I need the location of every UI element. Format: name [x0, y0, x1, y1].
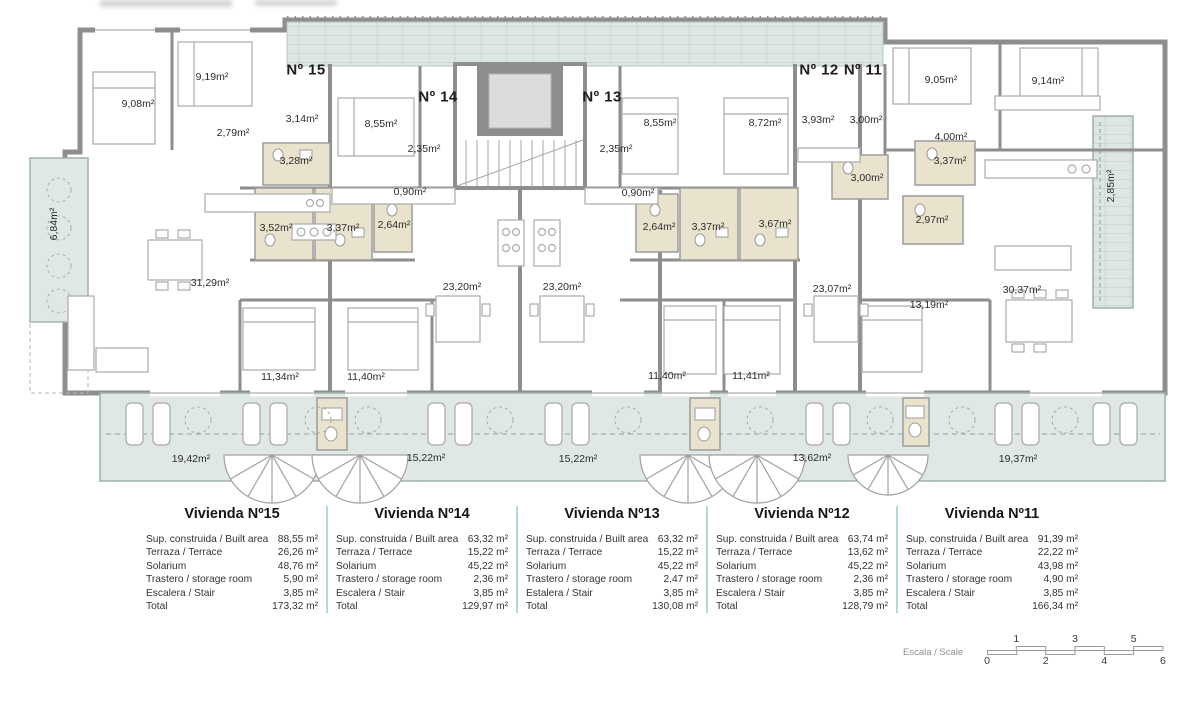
table-row: Sup. construida / Built area63,32 m²: [526, 533, 698, 546]
row-value: 166,34 m²: [1032, 600, 1078, 613]
scale-tick-number: 1: [1013, 633, 1019, 645]
row-value: 45,22 m²: [468, 560, 508, 573]
row-value: 63,74 m²: [848, 533, 888, 546]
row-value: 3,85 m²: [1043, 587, 1078, 600]
row-value: 63,32 m²: [468, 533, 508, 546]
table-row: Escalera / Stair3,85 m²: [906, 587, 1078, 600]
scale-label: Escala / Scale: [903, 647, 963, 658]
table-row: Terraza / Terrace22,22 m²: [906, 546, 1078, 559]
row-value: 91,39 m²: [1038, 533, 1078, 546]
row-label: Sup. construida / Built area: [146, 533, 268, 546]
stair-elevator-core: [455, 64, 585, 188]
table-row: Total130,08 m²: [526, 600, 698, 613]
row-value: 26,26 m²: [278, 546, 318, 559]
floor-plan: [0, 0, 1200, 505]
row-value: 3,85 m²: [283, 587, 318, 600]
table-row: Total128,79 m²: [716, 600, 888, 613]
row-value: 45,22 m²: [848, 560, 888, 573]
row-label: Escalera / Stair: [146, 587, 215, 600]
row-value: 129,97 m²: [462, 600, 508, 613]
row-value: 2,47 m²: [663, 573, 698, 586]
row-label: Escalera / Stair: [906, 587, 975, 600]
table-row: Terraza / Terrace15,22 m²: [526, 546, 698, 559]
row-value: 15,22 m²: [468, 546, 508, 559]
row-value: 45,22 m²: [658, 560, 698, 573]
row-label: Estalera / Stair: [526, 587, 593, 600]
row-value: 4,90 m²: [1043, 573, 1078, 586]
vivienda-table: Vivienda Nº14Sup. construida / Built are…: [326, 506, 516, 613]
row-value: 88,55 m²: [278, 533, 318, 546]
table-row: Escalera / Stair3,85 m²: [146, 587, 318, 600]
scale-tick-number: 5: [1131, 633, 1137, 645]
table-row: Solarium45,22 m²: [336, 560, 508, 573]
row-value: 15,22 m²: [658, 546, 698, 559]
row-label: Trastero / storage room: [146, 573, 252, 586]
elevator-car: [489, 74, 551, 128]
table-row: Solarium45,22 m²: [716, 560, 888, 573]
tables-section: Vivienda Nº15Sup. construida / Built are…: [138, 506, 1086, 613]
row-value: 13,62 m²: [848, 546, 888, 559]
vivienda-table: Vivienda Nº15Sup. construida / Built are…: [138, 506, 326, 613]
table-row: Solarium45,22 m²: [526, 560, 698, 573]
vivienda-table: Vivienda Nº13Sup. construida / Built are…: [516, 506, 706, 613]
row-label: Terraza / Terrace: [906, 546, 982, 559]
row-value: 2,36 m²: [473, 573, 508, 586]
scale-bar-graphic: [987, 646, 1165, 656]
row-label: Total: [526, 600, 548, 613]
table-row: Estalera / Stair3,85 m²: [526, 587, 698, 600]
row-label: Total: [716, 600, 738, 613]
vivienda-table: Vivienda Nº11Sup. construida / Built are…: [896, 506, 1086, 613]
row-value: 63,32 m²: [658, 533, 698, 546]
scale-tick-number: 4: [1101, 655, 1107, 667]
row-label: Total: [336, 600, 358, 613]
table-row: Terraza / Terrace15,22 m²: [336, 546, 508, 559]
row-label: Sup. construida / Built area: [526, 533, 648, 546]
table-title: Vivienda Nº11: [906, 506, 1078, 522]
row-label: Terraza / Terrace: [716, 546, 792, 559]
row-label: Total: [146, 600, 168, 613]
row-label: Sup. construida / Built area: [336, 533, 458, 546]
row-label: Terraza / Terrace: [336, 546, 412, 559]
row-label: Terraza / Terrace: [146, 546, 222, 559]
table-row: Trastero / storage room5,90 m²: [146, 573, 318, 586]
table-row: Sup. construida / Built area63,74 m²: [716, 533, 888, 546]
scale-bar: Escala / Scale 1350246: [903, 634, 1183, 674]
table-title: Vivienda Nº14: [336, 506, 508, 522]
table-row: Escalera / Stair3,85 m²: [336, 587, 508, 600]
row-value: 48,76 m²: [278, 560, 318, 573]
table-row: Total173,32 m²: [146, 600, 318, 613]
table-row: Terraza / Terrace13,62 m²: [716, 546, 888, 559]
row-label: Trastero / storage room: [526, 573, 632, 586]
row-label: Escalera / Stair: [336, 587, 405, 600]
row-label: Trastero / storage room: [906, 573, 1012, 586]
row-value: 173,32 m²: [272, 600, 318, 613]
table-row: Solarium48,76 m²: [146, 560, 318, 573]
row-value: 3,85 m²: [853, 587, 888, 600]
row-label: Terraza / Terrace: [526, 546, 602, 559]
table-row: Solarium43,98 m²: [906, 560, 1078, 573]
row-label: Solarium: [146, 560, 186, 573]
row-label: Trastero / storage room: [716, 573, 822, 586]
table-row: Terraza / Terrace26,26 m²: [146, 546, 318, 559]
row-label: Solarium: [716, 560, 756, 573]
table-title: Vivienda Nº12: [716, 506, 888, 522]
table-row: Total166,34 m²: [906, 600, 1078, 613]
table-title: Vivienda Nº13: [526, 506, 698, 522]
table-row: Sup. construida / Built area91,39 m²: [906, 533, 1078, 546]
scale-tick-number: 0: [984, 655, 990, 667]
table-row: Trastero / storage room2,36 m²: [336, 573, 508, 586]
vivienda-table: Vivienda Nº12Sup. construida / Built are…: [706, 506, 896, 613]
row-value: 130,08 m²: [652, 600, 698, 613]
row-value: 3,85 m²: [663, 587, 698, 600]
right-balcony: [1093, 116, 1133, 308]
row-label: Sup. construida / Built area: [716, 533, 838, 546]
scale-tick-number: 2: [1043, 655, 1049, 667]
row-label: Solarium: [906, 560, 946, 573]
scale-tick-number: 6: [1160, 655, 1166, 667]
table-row: Sup. construida / Built area88,55 m²: [146, 533, 318, 546]
table-row: Total129,97 m²: [336, 600, 508, 613]
floor-plan-page: Nº 15Nº 14Nº 13Nº 12Nº 119,19m²9,08m²3,1…: [0, 0, 1200, 719]
scale-tick-number: 3: [1072, 633, 1078, 645]
row-label: Solarium: [526, 560, 566, 573]
row-value: 22,22 m²: [1038, 546, 1078, 559]
table-row: Escalera / Stair3,85 m²: [716, 587, 888, 600]
table-row: Sup. construida / Built area63,32 m²: [336, 533, 508, 546]
row-label: Sup. construida / Built area: [906, 533, 1028, 546]
row-value: 2,36 m²: [853, 573, 888, 586]
row-value: 43,98 m²: [1038, 560, 1078, 573]
table-title: Vivienda Nº15: [146, 506, 318, 522]
table-row: Trastero / storage room2,36 m²: [716, 573, 888, 586]
table-row: Trastero / storage room2,47 m²: [526, 573, 698, 586]
row-value: 5,90 m²: [283, 573, 318, 586]
table-row: Trastero / storage room4,90 m²: [906, 573, 1078, 586]
row-label: Total: [906, 600, 928, 613]
row-label: Solarium: [336, 560, 376, 573]
row-value: 3,85 m²: [473, 587, 508, 600]
row-label: Trastero / storage room: [336, 573, 442, 586]
row-value: 128,79 m²: [842, 600, 888, 613]
row-label: Escalera / Stair: [716, 587, 785, 600]
roof-terrace-band: [287, 18, 883, 66]
